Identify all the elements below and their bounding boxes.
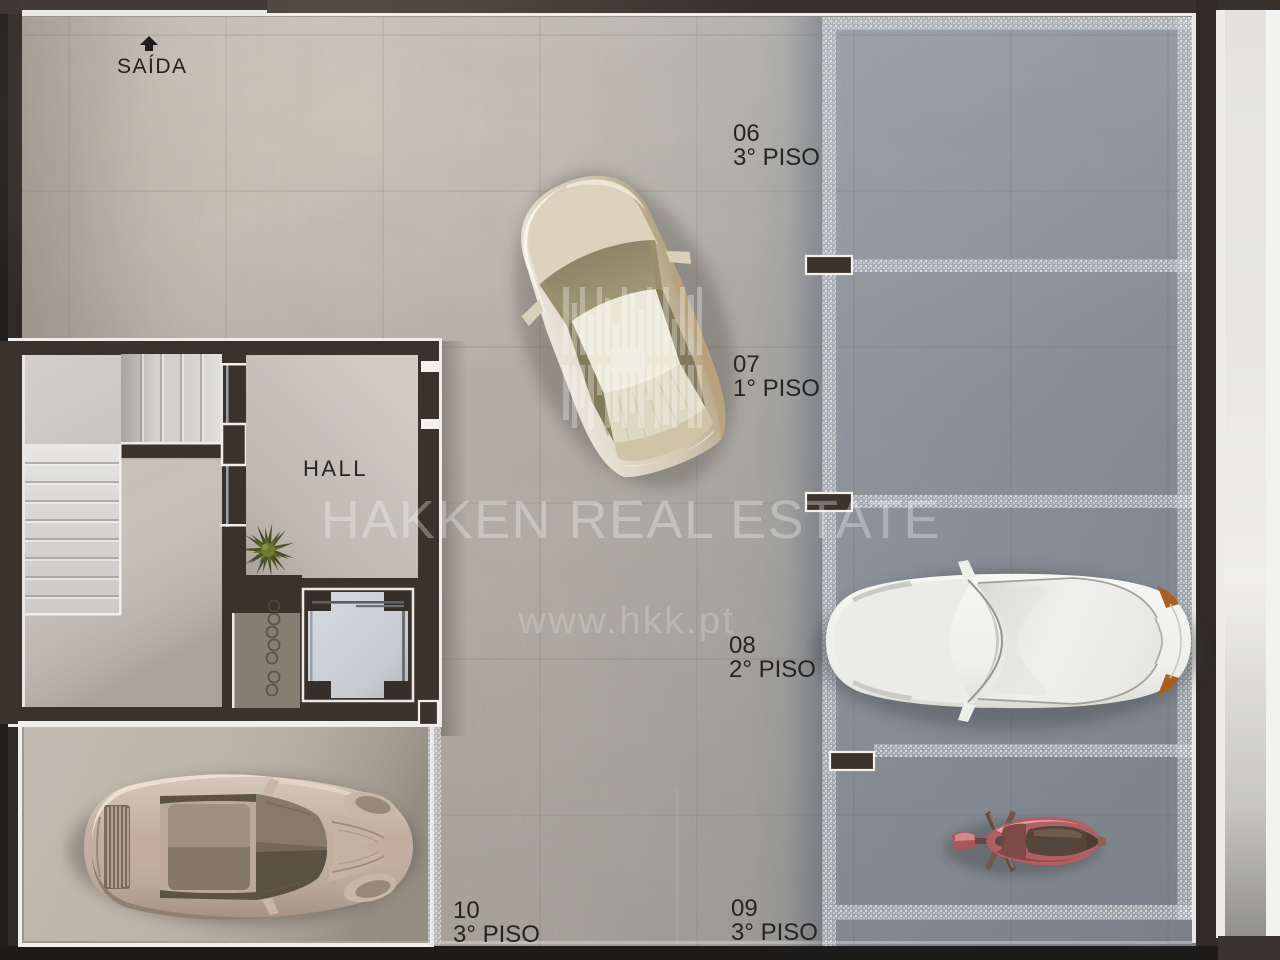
- svg-text:07: 07: [733, 351, 760, 378]
- svg-text:HAKKEN REAL ESTATE: HAKKEN REAL ESTATE: [321, 490, 941, 550]
- svg-text:10: 10: [453, 897, 480, 924]
- svg-text:3° PISO: 3° PISO: [733, 144, 820, 171]
- svg-text:1° PISO: 1° PISO: [733, 375, 820, 402]
- svg-text:09: 09: [731, 895, 758, 922]
- svg-text:3° PISO: 3° PISO: [731, 919, 818, 946]
- svg-text:2° PISO: 2° PISO: [729, 656, 816, 683]
- svg-text:HALL: HALL: [303, 456, 368, 481]
- svg-text:www.hkk.pt: www.hkk.pt: [517, 600, 735, 642]
- svg-text:06: 06: [733, 120, 760, 147]
- svg-text:SAÍDA: SAÍDA: [117, 55, 188, 78]
- svg-text:3° PISO: 3° PISO: [453, 921, 540, 948]
